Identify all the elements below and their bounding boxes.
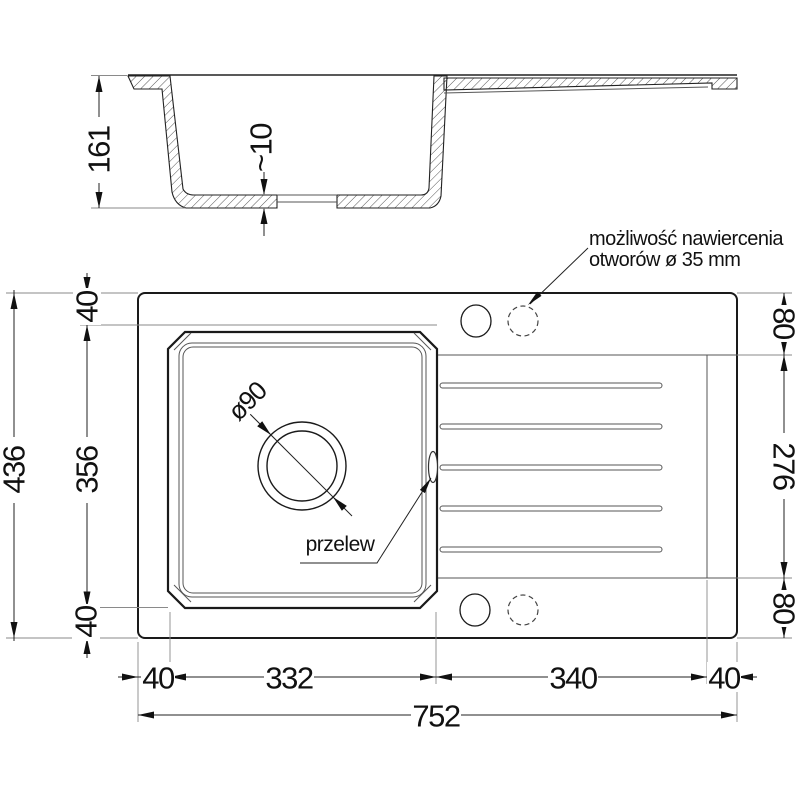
sink-technical-drawing: 161 ~10 ø90 (0, 0, 800, 800)
plan-view: ø90 przelew możliwość nawiercenia otworó… (80, 228, 784, 638)
groove (440, 383, 662, 388)
dim-left-middle: 356 (70, 446, 105, 493)
dim-bottom-right-margin: 40 (708, 661, 741, 696)
drawing-canvas: 161 ~10 ø90 (0, 0, 800, 800)
groove (440, 547, 662, 552)
dim-overall-height: 436 (0, 446, 32, 493)
dim-bottom-basin-width: 332 (265, 661, 312, 696)
arrowhead (781, 562, 788, 578)
arrowhead (781, 355, 788, 371)
drainboard-grooves (440, 383, 662, 552)
basin-inner-rim-inner (183, 347, 422, 593)
dim-total-width: 752 (412, 699, 459, 734)
arrowhead (11, 622, 18, 638)
drill-note-line1: możliwość nawiercenia (589, 228, 784, 250)
overflow-slot (429, 452, 438, 483)
arrowhead (436, 674, 452, 681)
arrowhead (96, 76, 103, 92)
section-drainboard (444, 78, 737, 90)
groove (440, 506, 662, 511)
basin-outline (168, 332, 437, 608)
overflow-label: przelew (306, 533, 376, 556)
optional-hole-bottom-dashed (508, 595, 538, 625)
optional-hole-top-dashed (508, 306, 538, 336)
dim-left-bottom: 40 (69, 605, 104, 638)
arrowhead (691, 674, 707, 681)
section-view: 161 ~10 (82, 75, 738, 236)
dim-bottom-drainer-width: 340 (549, 661, 597, 696)
groove (440, 424, 662, 429)
dim-right-top: 80 (767, 307, 800, 340)
arrowhead (96, 192, 103, 208)
arrowhead (11, 293, 18, 309)
dim-left-top: 40 (70, 290, 105, 323)
dim-bottom-left-margin: 40 (142, 661, 175, 696)
tap-hole-bottom (460, 594, 490, 626)
dim-section-bottom-step: ~10 (244, 123, 279, 172)
section-right-wall (337, 76, 447, 208)
dim-right-middle: 276 (767, 442, 800, 489)
arrowhead (420, 674, 436, 681)
arrowhead (138, 712, 154, 719)
groove (440, 465, 662, 470)
basin-inner-rim-outer (179, 343, 426, 597)
arrowhead (84, 325, 91, 341)
arrowhead (122, 674, 138, 681)
plan-dimensions: 436 40 356 40 80 276 80 (0, 273, 800, 734)
dim-section-height: 161 (82, 126, 117, 173)
dim-drain-diameter: ø90 (222, 375, 273, 426)
arrowhead (261, 208, 268, 224)
tap-hole-top (461, 305, 491, 337)
drill-note-line2: otworów ø 35 mm (589, 249, 740, 271)
arrowhead (261, 179, 268, 195)
arrowhead (721, 712, 737, 719)
dim-right-bottom: 80 (767, 592, 800, 625)
